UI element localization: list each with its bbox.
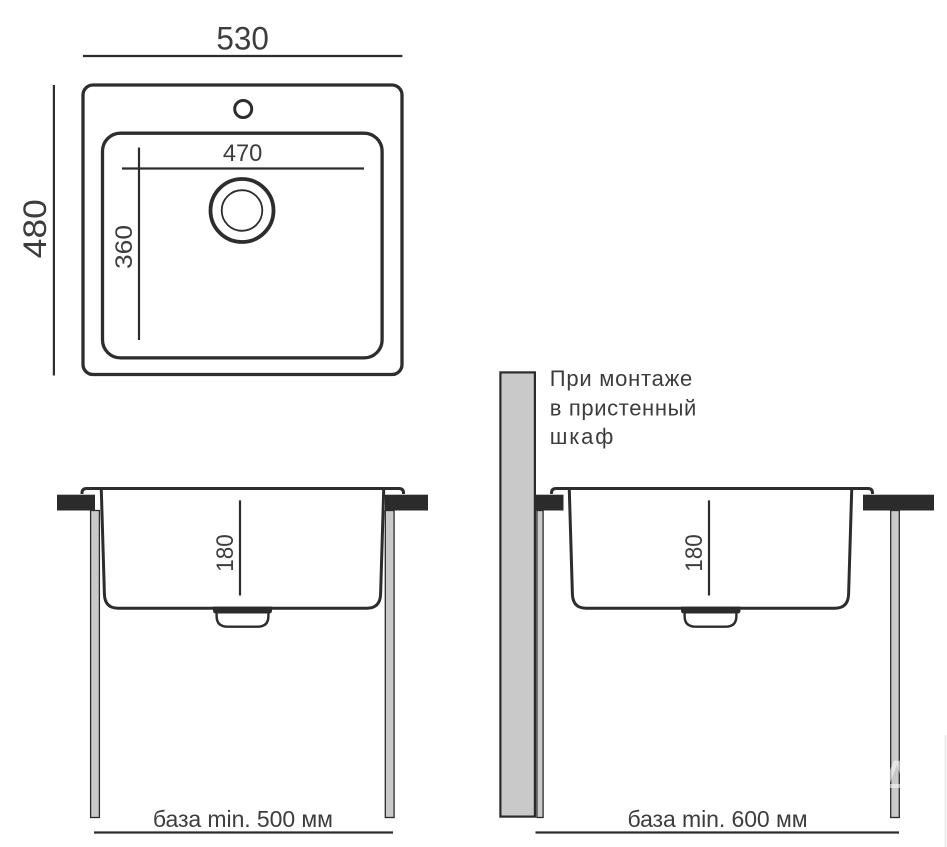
svg-text:шкаф: шкаф bbox=[550, 424, 614, 449]
svg-text:А: А bbox=[878, 748, 916, 811]
svg-text:530: 530 bbox=[216, 21, 269, 57]
svg-text:480: 480 bbox=[17, 199, 53, 258]
svg-text:в пристенный: в пристенный bbox=[550, 396, 697, 421]
svg-text:180: 180 bbox=[681, 534, 708, 572]
svg-text:470: 470 bbox=[223, 140, 263, 167]
svg-text:180: 180 bbox=[212, 534, 239, 572]
svg-text:При монтаже: При монтаже bbox=[550, 366, 693, 391]
svg-text:база min. 600 мм: база min. 600 мм bbox=[628, 806, 808, 832]
svg-text:база min. 500 мм: база min. 500 мм bbox=[153, 806, 333, 832]
svg-text:360: 360 bbox=[111, 225, 138, 269]
